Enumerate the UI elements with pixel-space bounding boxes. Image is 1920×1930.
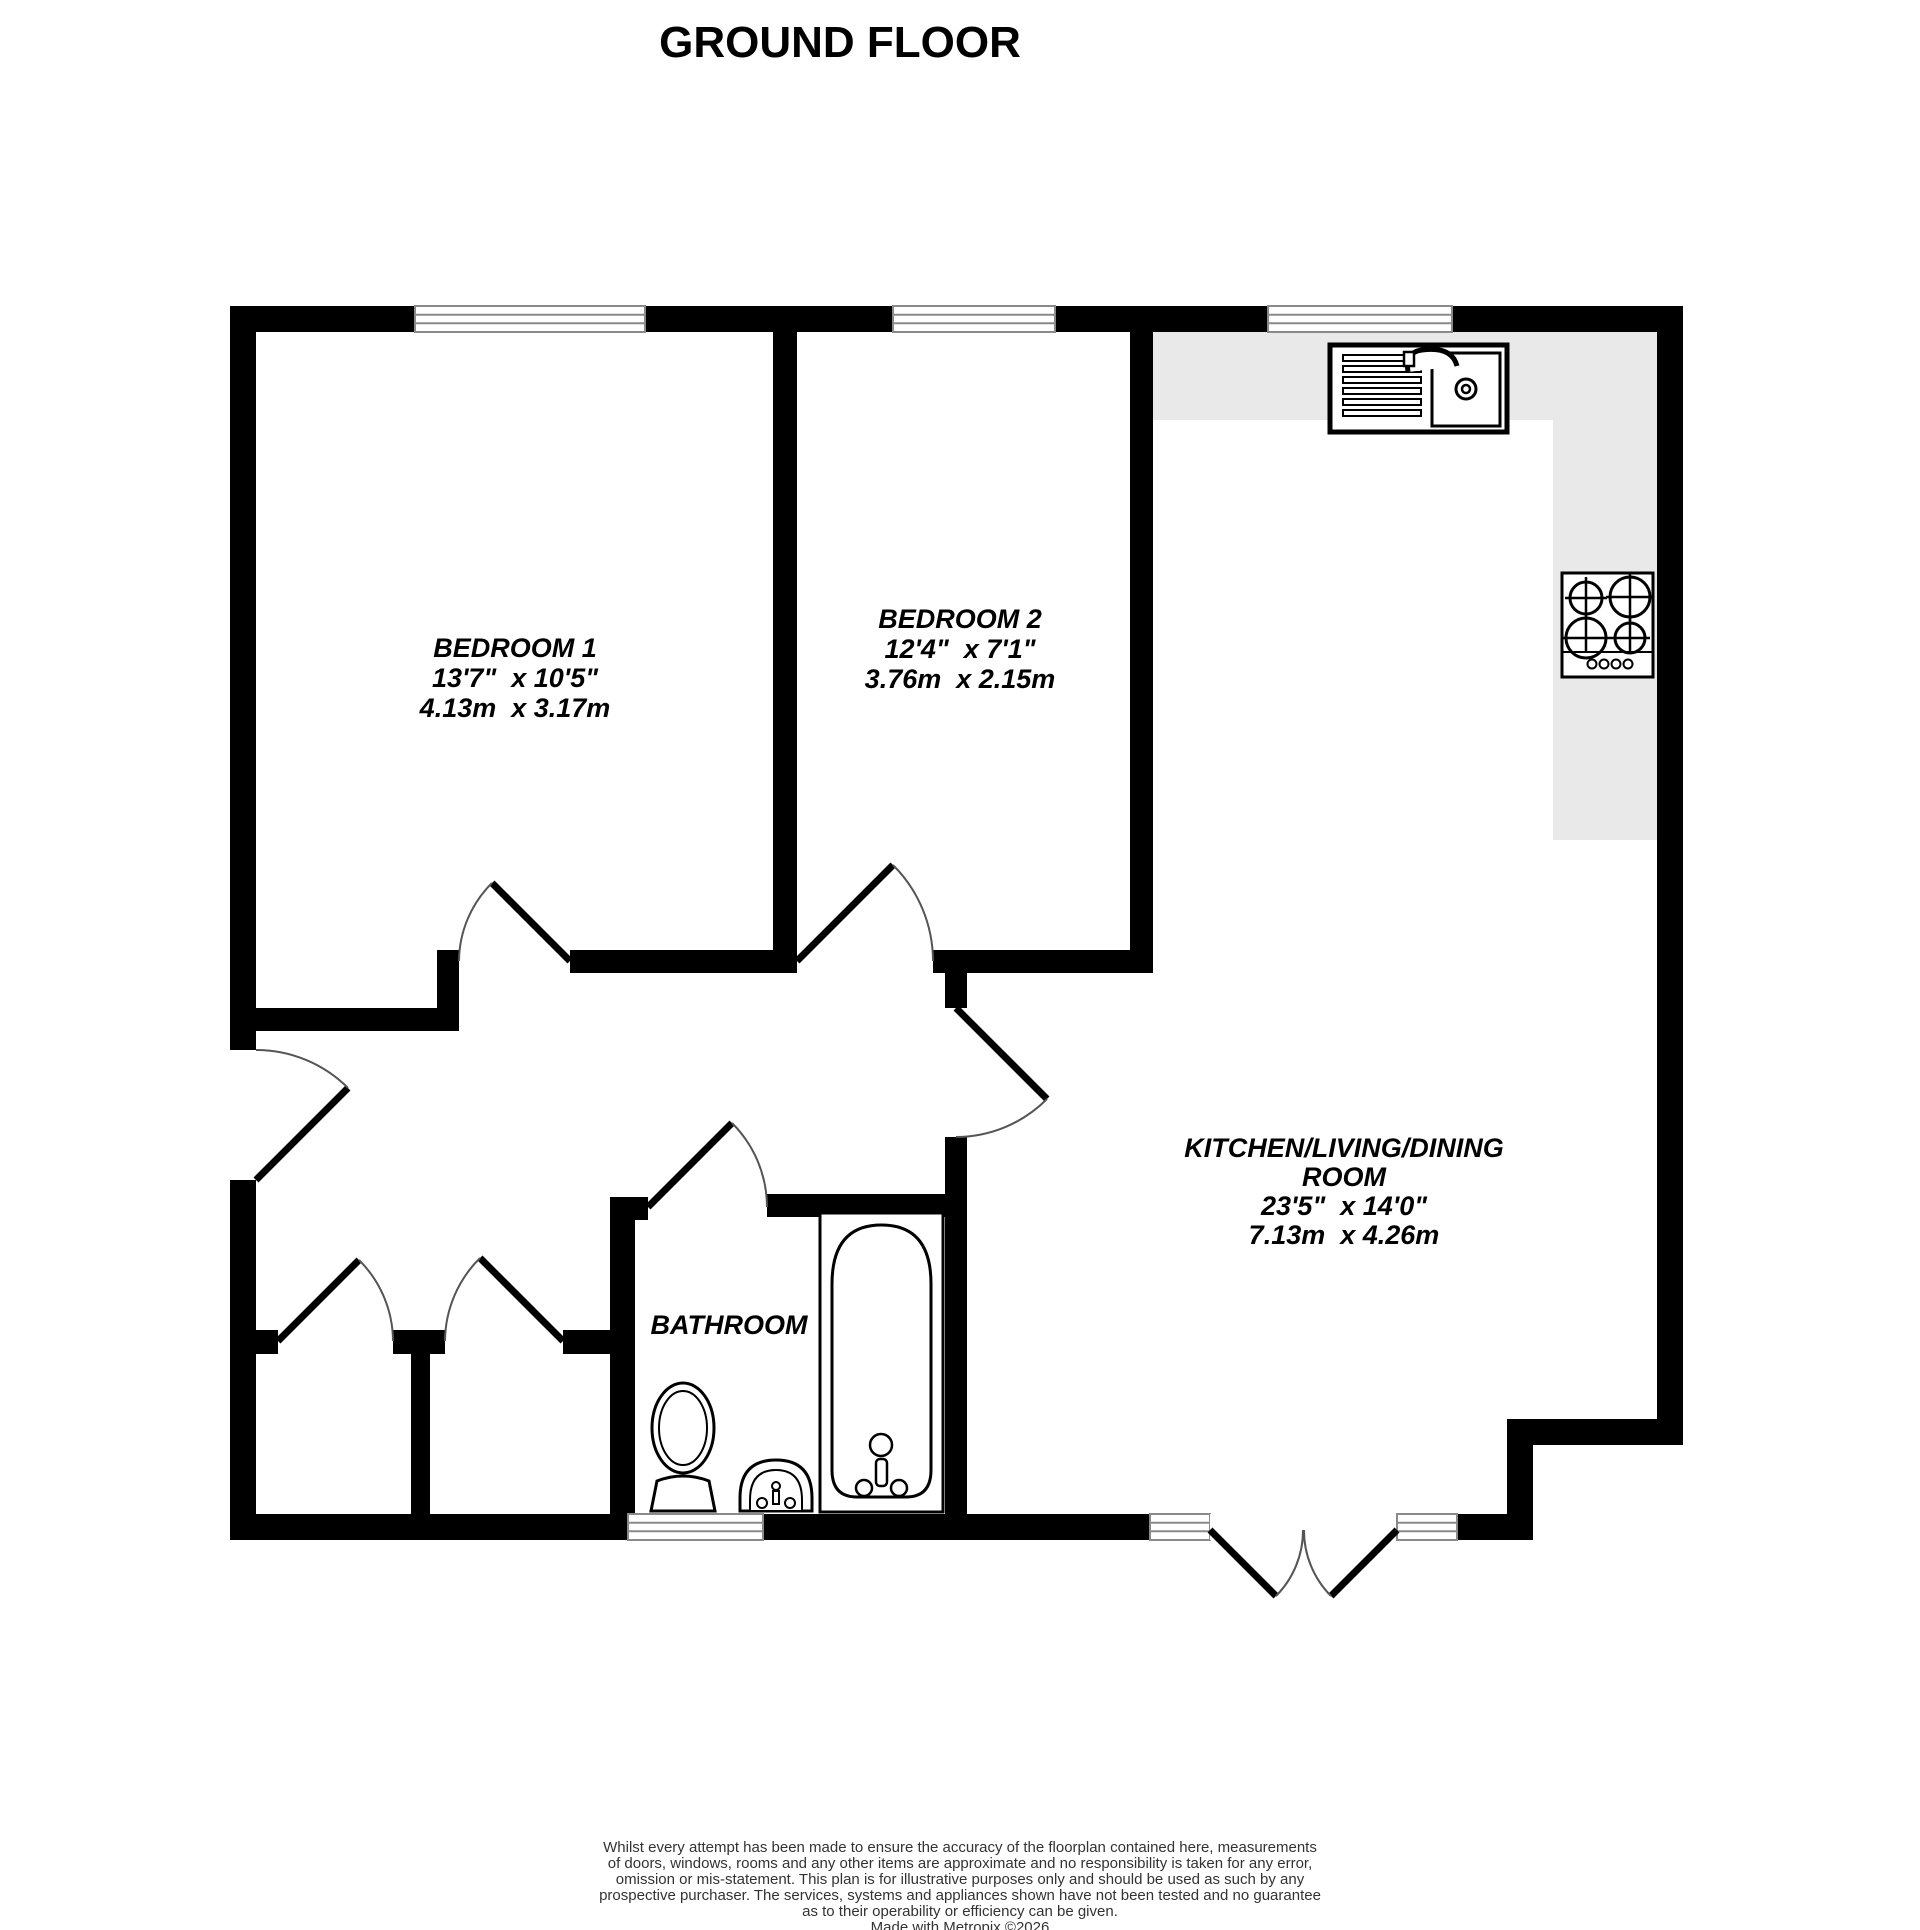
floorplan-page: GROUND FLOOR	[0, 0, 1920, 1930]
bedroom2-name: BEDROOM 2	[878, 604, 1042, 634]
bedroom1-size-imperial: 13'7" x 10'5"	[432, 663, 599, 693]
disclaimer-line: of doors, windows, rooms and any other i…	[608, 1855, 1313, 1872]
entrance-opening	[230, 1050, 256, 1180]
bedroom2-window-icon	[893, 306, 1055, 332]
living-window-right-icon	[1397, 1514, 1457, 1540]
bedroom1-size-metric: 4.13m x 3.17m	[419, 693, 611, 723]
credit-line: Made with Metropix ©2026	[871, 1919, 1050, 1930]
living-window-left-icon	[1150, 1514, 1210, 1540]
bedroom2-size-imperial: 12'4" x 7'1"	[884, 634, 1036, 664]
entrance-door-icon	[256, 1050, 348, 1180]
kitchen-door-icon	[956, 1008, 1047, 1137]
bathroom-name: BATHROOM	[651, 1310, 808, 1340]
kitchen-sink-icon	[1330, 345, 1507, 432]
bathroom-window-icon	[628, 1514, 763, 1540]
disclaimer-line: prospective purchaser. The services, sys…	[599, 1887, 1321, 1904]
kitchen-name-line2: ROOM	[1302, 1162, 1387, 1192]
floor-plan-drawing: GROUND FLOOR	[0, 0, 1920, 1930]
floor-title: GROUND FLOOR	[659, 18, 1021, 67]
disclaimer-line: Whilst every attempt has been made to en…	[603, 1839, 1317, 1856]
bedroom2-door-icon	[797, 865, 933, 961]
kitchen-size-metric: 7.13m x 4.26m	[1249, 1220, 1440, 1250]
kitchen-name-line1: KITCHEN/LIVING/DINING	[1184, 1133, 1504, 1163]
hob-icon	[1562, 573, 1653, 677]
disclaimer: Whilst every attempt has been made to en…	[599, 1839, 1321, 1930]
walls	[230, 306, 1683, 1540]
toilet-icon	[651, 1383, 715, 1511]
closet-right-door-icon	[445, 1258, 563, 1341]
closet-left-door-icon	[278, 1260, 393, 1341]
bathroom-door-icon	[648, 1123, 767, 1207]
bedroom1-window-icon	[415, 306, 645, 332]
disclaimer-line: as to their operability or efficiency ca…	[802, 1903, 1118, 1920]
kitchen-window-icon	[1268, 306, 1452, 332]
bedroom2-size-metric: 3.76m x 2.15m	[865, 664, 1056, 694]
wash-basin-icon	[740, 1460, 812, 1511]
bathtub-icon	[820, 1213, 943, 1512]
bedroom1-door-icon	[459, 883, 570, 961]
bedroom1-name: BEDROOM 1	[433, 633, 597, 663]
kitchen-size-imperial: 23'5" x 14'0"	[1260, 1191, 1428, 1221]
disclaimer-line: omission or mis-statement. This plan is …	[616, 1871, 1305, 1888]
